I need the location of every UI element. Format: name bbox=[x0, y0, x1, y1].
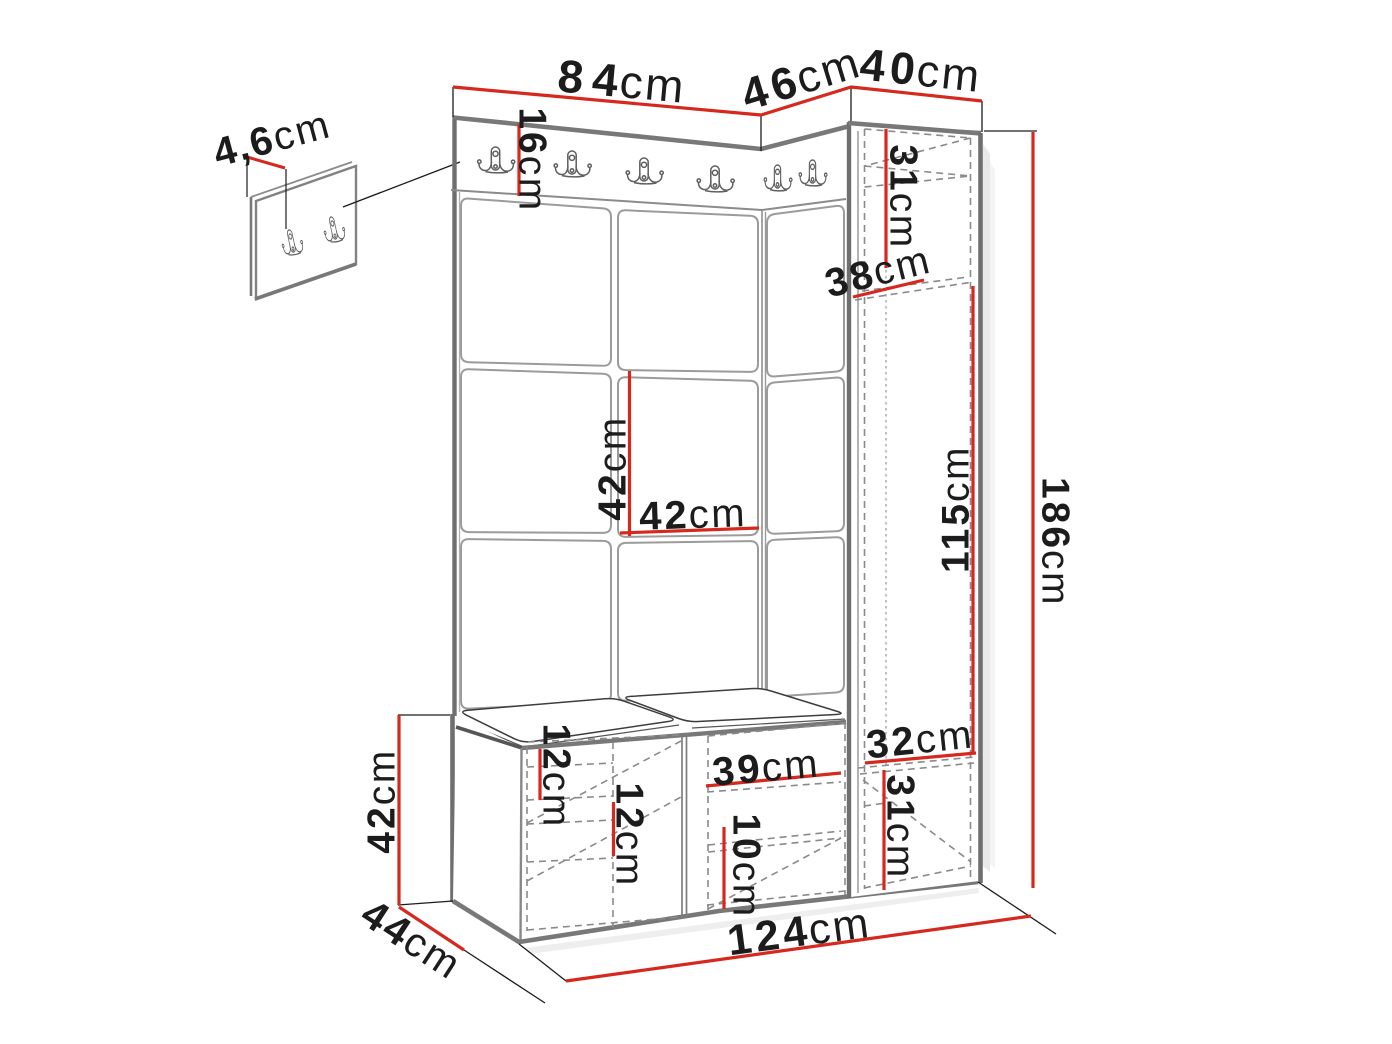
svg-text:10cm: 10cm bbox=[724, 813, 767, 918]
svg-text:42cm: 42cm bbox=[592, 415, 635, 520]
svg-text:31cm: 31cm bbox=[881, 144, 924, 249]
svg-text:42cm: 42cm bbox=[361, 748, 404, 853]
svg-text:12cm: 12cm bbox=[607, 782, 650, 887]
svg-text:31cm: 31cm bbox=[878, 774, 921, 879]
svg-text:16cm: 16cm bbox=[510, 107, 553, 212]
svg-text:12cm: 12cm bbox=[534, 723, 577, 828]
svg-text:115cm: 115cm bbox=[935, 445, 978, 573]
svg-text:39cm: 39cm bbox=[710, 741, 821, 794]
svg-text:186cm: 186cm bbox=[1033, 477, 1076, 607]
svg-text:42cm: 42cm bbox=[638, 491, 747, 539]
